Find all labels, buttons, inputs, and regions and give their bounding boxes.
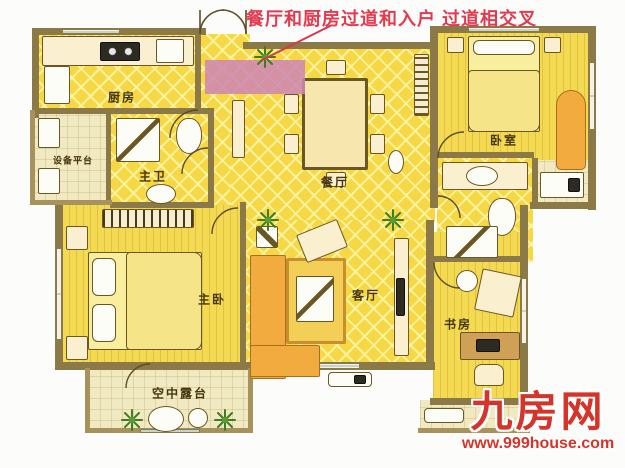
window-master-left	[56, 248, 62, 340]
sofa-chaise	[250, 345, 320, 377]
site-logo-name: 九房网	[452, 390, 624, 434]
room-label-living: 客厅	[352, 287, 380, 304]
dining-chair	[370, 94, 385, 114]
site-logo: 九房网 www.999house.com	[452, 390, 624, 453]
decor-square-icon	[256, 226, 278, 248]
room-label-bedroom: 卧室	[490, 132, 518, 149]
room-label-equipment-platform: 设备平台	[53, 154, 93, 167]
wall-equip-left	[30, 110, 35, 204]
dining-chair	[284, 94, 299, 114]
laptop-icon	[476, 339, 500, 352]
nightstand	[66, 226, 88, 250]
wall-left-kitchen	[32, 28, 39, 118]
shoe-cabinet	[414, 54, 429, 116]
corridor-highlight	[205, 60, 305, 94]
wall-kitchen-bath	[34, 108, 214, 114]
desk-chair	[474, 364, 504, 386]
bed-pillow	[92, 258, 116, 296]
entry-door-icon	[200, 10, 246, 34]
wall-top-dining-right	[362, 42, 438, 49]
wall-bottom-master	[55, 362, 248, 370]
wall-equip-bottom	[30, 200, 112, 205]
coffee-table	[296, 276, 334, 322]
wall-terrace-left	[85, 368, 90, 432]
annotation-text: 餐厅和厨房过道和入户 过道相交叉	[246, 5, 537, 31]
equipment-unit-icon	[38, 118, 60, 148]
bed-pillow	[473, 40, 535, 55]
dining-table	[302, 78, 368, 170]
wall-equip-bath	[106, 112, 111, 204]
stove-icon	[100, 42, 140, 61]
terrace-table-icon	[148, 406, 184, 432]
wall-hall-bath	[208, 108, 214, 208]
floorplan-image: 厨房 设备平台 主卫 餐厅 卧室 主卧 客厅 书房 空中露台 餐厅和厨房过道和入…	[0, 0, 625, 468]
fridge-icon	[44, 66, 70, 104]
wall-master-living	[240, 202, 246, 366]
equipment-unit-icon	[38, 168, 60, 194]
kitchen-sink-icon	[156, 39, 184, 63]
bed-pillow	[92, 304, 116, 342]
study-armchair	[474, 268, 522, 317]
room-label-dining: 餐厅	[321, 174, 349, 191]
wall-bath2-left	[430, 158, 438, 208]
window-study-right	[521, 278, 527, 344]
room-label-kitchen: 厨房	[108, 89, 136, 106]
wall-kitchen-hall	[195, 34, 201, 110]
bathroom2-sink-icon	[466, 166, 498, 186]
site-logo-url: www.999house.com	[452, 435, 624, 453]
dining-chair	[370, 134, 385, 154]
washer-door-icon	[568, 178, 580, 192]
armchair-wardrobe-icon	[556, 90, 586, 170]
side-table-icon	[456, 270, 478, 292]
dining-chair	[326, 60, 346, 75]
window-kitchen	[62, 29, 120, 34]
room-label-master-bathroom: 主卫	[139, 168, 167, 185]
room-label-study: 书房	[444, 316, 472, 333]
room-label-master-bedroom: 主卧	[198, 291, 226, 308]
toilet-icon	[176, 118, 202, 154]
shower-icon	[116, 118, 160, 162]
nightstand	[66, 336, 88, 360]
wall-bedroom-bath2	[438, 152, 534, 158]
nightstand	[544, 37, 561, 53]
wall-dining-bedroom	[430, 33, 438, 159]
room-label-sky-terrace: 空中露台	[152, 385, 208, 402]
bathroom-sink-icon	[146, 184, 176, 204]
bed-blanket	[126, 252, 202, 350]
shower-icon	[446, 226, 498, 258]
window-bedroom-right	[589, 62, 595, 130]
wall-top-dining	[243, 42, 369, 49]
nightstand	[447, 37, 464, 53]
wall-utility-bottom	[530, 202, 596, 209]
bed-blanket	[468, 70, 540, 132]
wall-bath2-utility	[532, 158, 538, 204]
decor-stand-icon	[388, 150, 404, 174]
tv-icon	[396, 278, 405, 316]
terrace-chair-icon	[188, 408, 208, 428]
dining-chair	[284, 134, 299, 154]
wardrobe-hangers	[102, 209, 194, 228]
sideboard-cabinet	[232, 100, 245, 158]
ac-unit-detail	[354, 375, 366, 384]
wall-living-study	[426, 220, 434, 364]
